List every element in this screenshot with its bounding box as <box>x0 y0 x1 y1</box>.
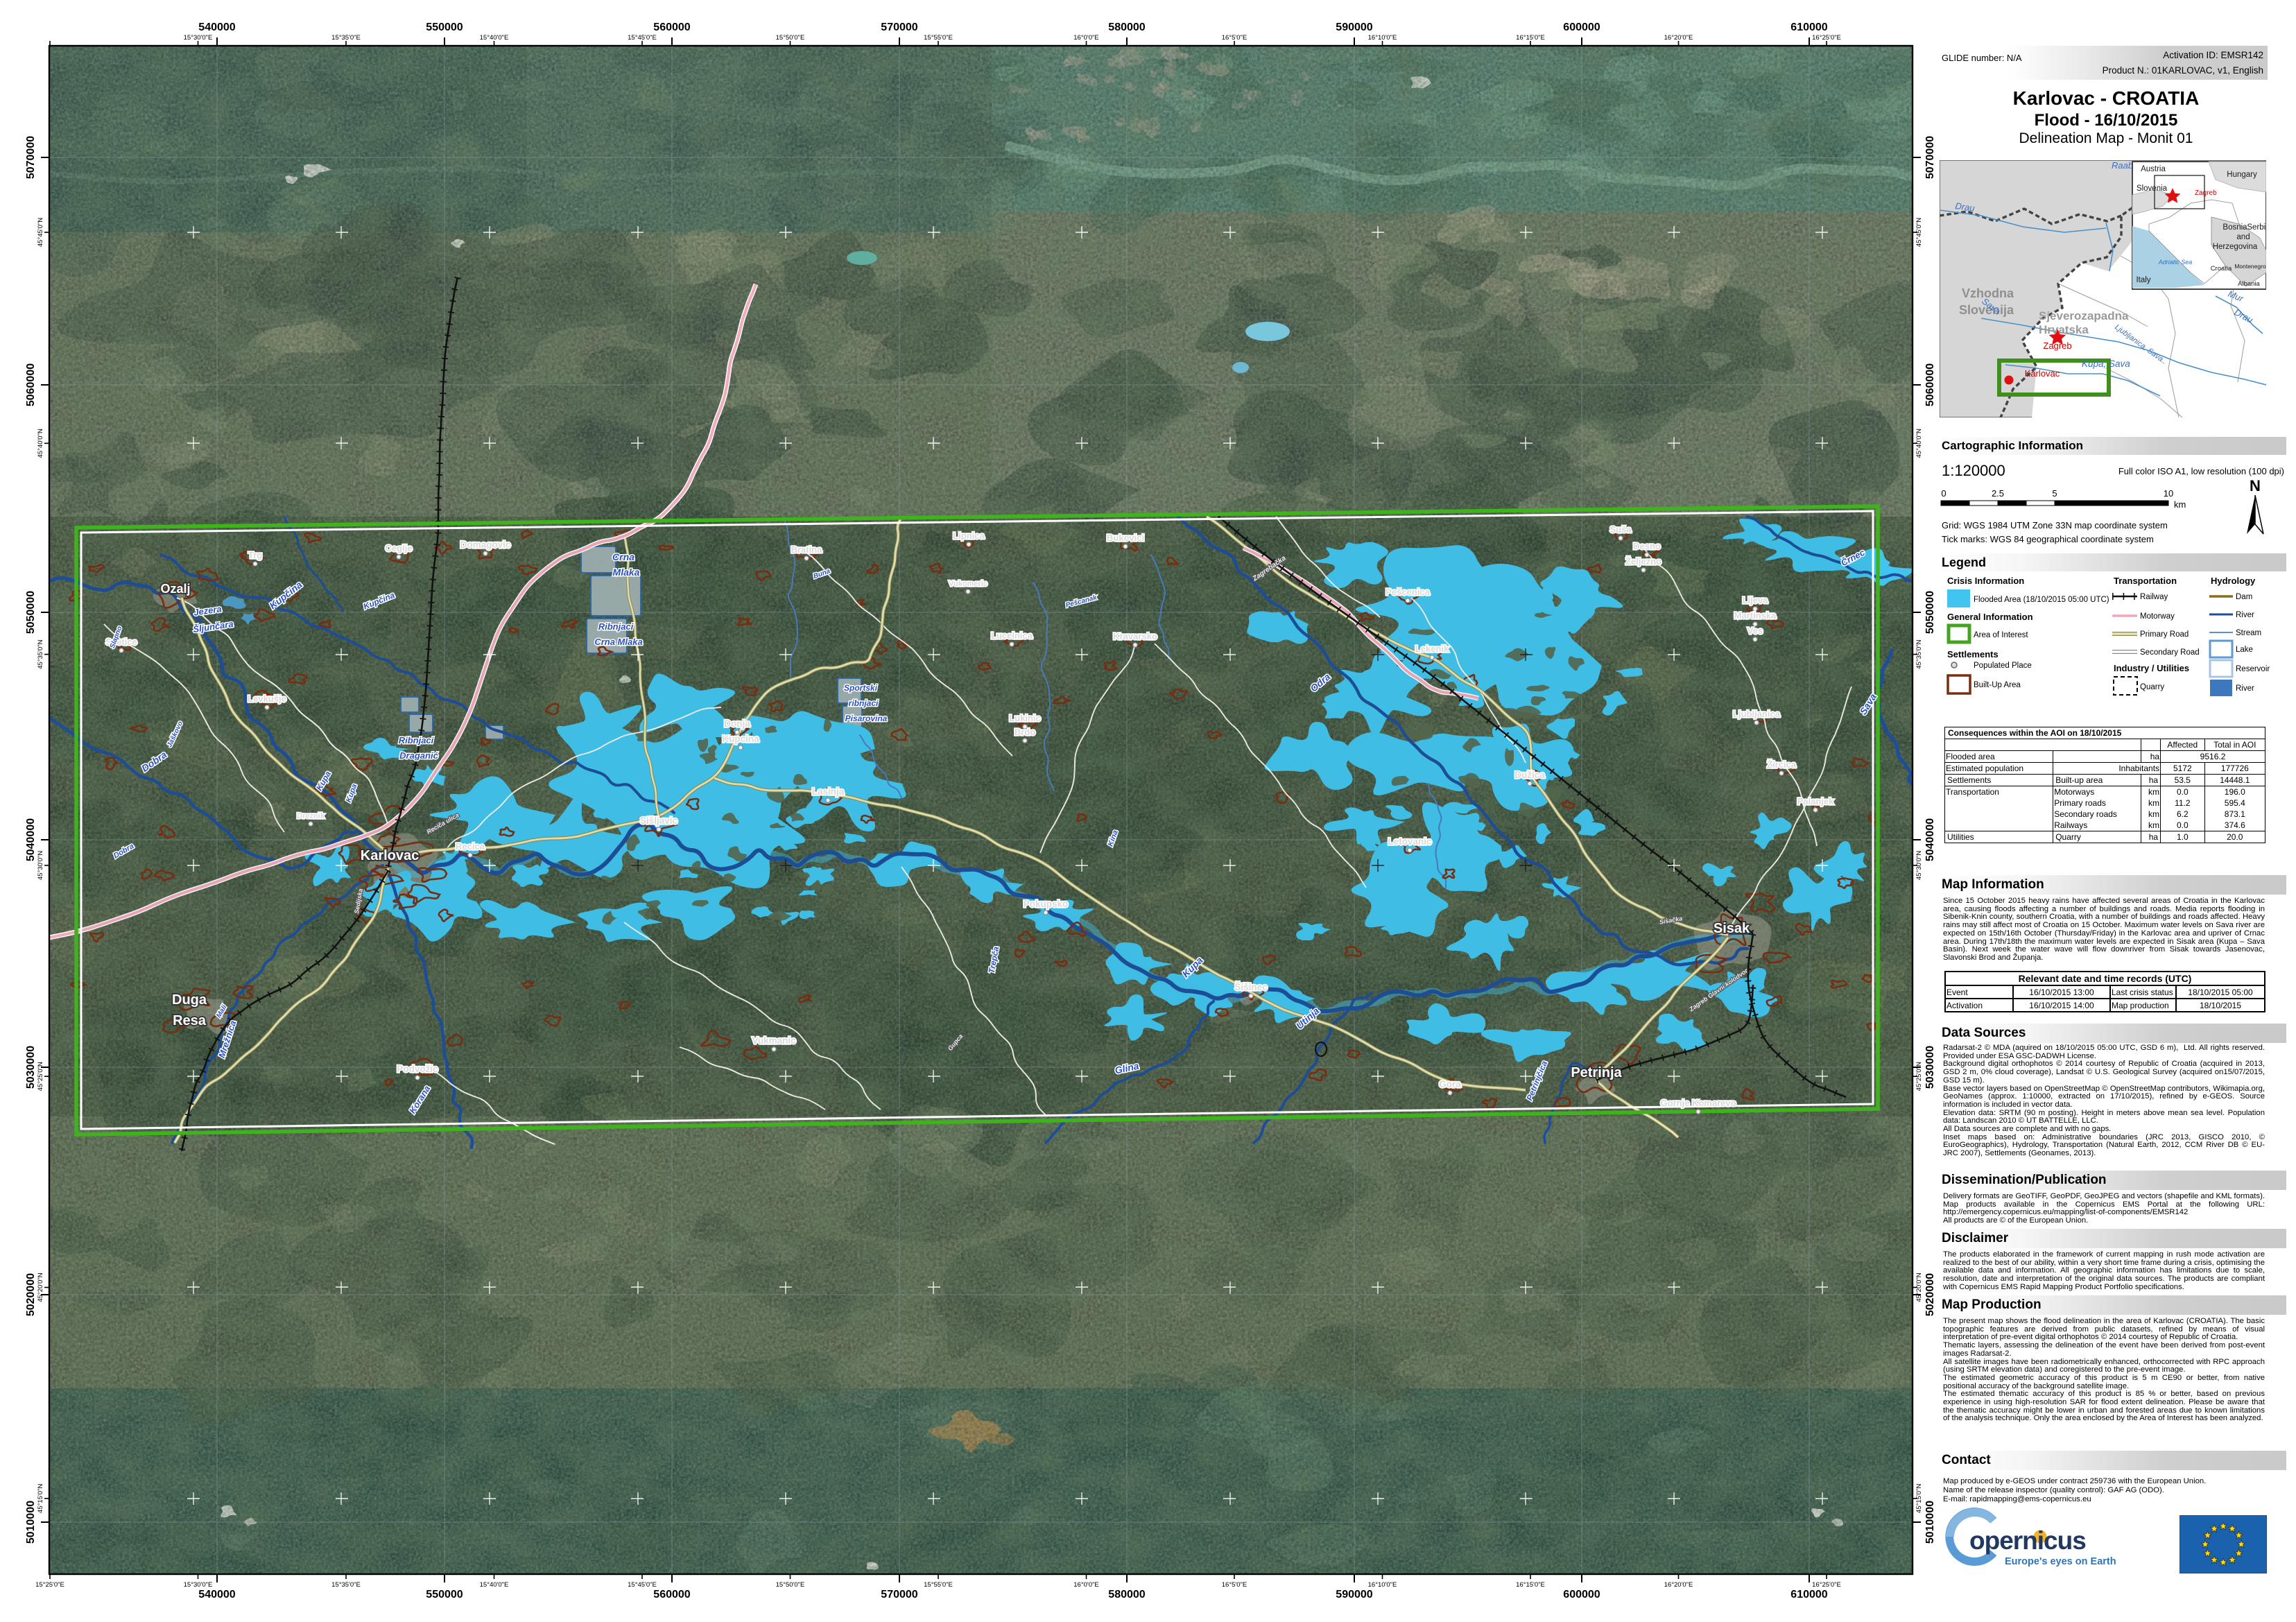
svg-text:15°45'0"E: 15°45'0"E <box>628 34 657 42</box>
svg-text:580000: 580000 <box>1108 1589 1145 1601</box>
svg-text:Petrinja: Petrinja <box>1571 1065 1622 1080</box>
svg-text:Industry / Utilities: Industry / Utilities <box>2114 663 2189 673</box>
svg-text:Lukinic: Lukinic <box>1009 713 1041 723</box>
svg-text:Austria: Austria <box>2141 165 2166 173</box>
svg-text:Sportski: Sportski <box>844 683 878 693</box>
svg-text:5010000: 5010000 <box>25 1501 37 1544</box>
svg-text:Motorway: Motorway <box>2140 612 2175 621</box>
svg-text:Zagreb: Zagreb <box>2043 340 2071 351</box>
svg-text:45°45'0"N: 45°45'0"N <box>37 218 44 247</box>
svg-text:Croatia: Croatia <box>2211 265 2232 273</box>
svg-text:Transportation: Transportation <box>2114 576 2177 586</box>
svg-text:Kupa, Sava: Kupa, Sava <box>2082 359 2130 369</box>
svg-text:45°20'0"N: 45°20'0"N <box>1915 1272 1923 1302</box>
svg-text:45°45'0"N: 45°45'0"N <box>1915 218 1923 247</box>
svg-text:5030000: 5030000 <box>25 1046 37 1089</box>
svg-text:15°55'0"E: 15°55'0"E <box>924 34 953 42</box>
svg-text:5020000: 5020000 <box>25 1273 37 1316</box>
svg-text:5050000: 5050000 <box>25 591 37 634</box>
svg-text:Herzegovina: Herzegovina <box>2213 243 2258 251</box>
svg-text:Ribnjaci: Ribnjaci <box>399 735 434 745</box>
svg-text:45°35'0"N: 45°35'0"N <box>37 639 44 668</box>
svg-text:opernicus: opernicus <box>1969 1526 2086 1555</box>
svg-text:Flooded Area (18/10/2015 05:00: Flooded Area (18/10/2015 05:00 UTC) <box>1974 596 2109 604</box>
svg-text:15°30'0"E: 15°30'0"E <box>184 34 213 42</box>
svg-text:550000: 550000 <box>426 21 463 33</box>
svg-text:16°25'0"E: 16°25'0"E <box>1812 34 1841 42</box>
svg-text:5030000: 5030000 <box>1924 1046 1935 1089</box>
svg-text:Pisarovina: Pisarovina <box>845 714 888 723</box>
svg-text:15°40'0"E: 15°40'0"E <box>480 1581 509 1589</box>
svg-text:Vukmanic: Vukmanic <box>752 1035 796 1046</box>
svg-text:45°30'0"N: 45°30'0"N <box>1915 851 1923 880</box>
svg-text:Desno: Desno <box>1633 541 1661 551</box>
svg-text:16°10'0"E: 16°10'0"E <box>1368 1581 1397 1589</box>
svg-text:Domagovic: Domagovic <box>460 540 511 550</box>
svg-text:Podvožic: Podvožic <box>397 1064 438 1074</box>
svg-text:5010000: 5010000 <box>1924 1501 1935 1544</box>
svg-text:Montenegro: Montenegro <box>2234 263 2266 270</box>
svg-text:Adriatic Sea: Adriatic Sea <box>2158 259 2193 266</box>
svg-text:45°25'0"N: 45°25'0"N <box>37 1062 44 1091</box>
svg-text:610000: 610000 <box>1790 21 1827 33</box>
svg-text:Šišinec: Šišinec <box>1234 982 1268 992</box>
svg-text:16°15'0"E: 16°15'0"E <box>1516 1581 1545 1589</box>
svg-text:Bratina: Bratina <box>791 544 823 555</box>
svg-text:16°20'0"E: 16°20'0"E <box>1664 34 1693 42</box>
svg-text:Hydrology: Hydrology <box>2211 576 2256 586</box>
svg-text:ribnjaci: ribnjaci <box>849 698 879 708</box>
svg-text:Stream: Stream <box>2236 629 2261 637</box>
svg-text:45°40'0"N: 45°40'0"N <box>37 429 44 458</box>
svg-text:Primary Road: Primary Road <box>2140 630 2189 639</box>
svg-text:Zagreb: Zagreb <box>2195 189 2217 197</box>
svg-text:Kupcina: Kupcina <box>722 734 759 744</box>
svg-text:Built-Up Area: Built-Up Area <box>1974 681 2021 689</box>
svg-text:15°50'0"E: 15°50'0"E <box>776 34 805 42</box>
svg-text:Italy: Italy <box>2136 276 2150 284</box>
svg-text:Hrvatska: Hrvatska <box>2039 323 2089 336</box>
svg-text:5040000: 5040000 <box>25 818 37 861</box>
svg-text:16°10'0"E: 16°10'0"E <box>1368 34 1397 42</box>
svg-text:Lucelnica: Lucelnica <box>991 630 1033 641</box>
svg-text:Ribnjaci: Ribnjaci <box>598 621 634 632</box>
svg-text:Crna: Crna <box>612 551 635 562</box>
svg-text:Gora: Gora <box>1439 1079 1461 1089</box>
svg-text:5070000: 5070000 <box>1924 136 1935 179</box>
svg-text:5020000: 5020000 <box>1924 1273 1935 1316</box>
svg-text:570000: 570000 <box>881 1589 917 1601</box>
svg-text:Crna Mlaka: Crna Mlaka <box>594 637 642 647</box>
svg-text:600000: 600000 <box>1563 21 1600 33</box>
svg-text:45°40'0"N: 45°40'0"N <box>1915 429 1923 458</box>
svg-text:General Information: General Information <box>1947 612 2033 622</box>
svg-text:Sjeverozapadna: Sjeverozapadna <box>2039 309 2129 322</box>
svg-text:Resa: Resa <box>173 1013 207 1028</box>
svg-text:Ozalj: Ozalj <box>160 582 190 596</box>
svg-text:16°0'0"E: 16°0'0"E <box>1073 34 1098 42</box>
svg-text:16°5'0"E: 16°5'0"E <box>1222 1581 1247 1589</box>
svg-text:Martinska: Martinska <box>1734 610 1777 621</box>
svg-text:550000: 550000 <box>426 1589 463 1601</box>
svg-text:and: and <box>2236 233 2250 241</box>
svg-text:River: River <box>2236 611 2254 619</box>
svg-text:Lake: Lake <box>2236 646 2253 654</box>
svg-text:5060000: 5060000 <box>25 363 37 406</box>
svg-text:15°25'0"E: 15°25'0"E <box>35 1581 64 1589</box>
svg-text:570000: 570000 <box>881 21 917 33</box>
svg-text:Settlements: Settlements <box>1947 649 1999 659</box>
svg-text:Žircica: Žircica <box>1767 759 1797 770</box>
svg-text:2.5: 2.5 <box>1992 488 2004 499</box>
svg-text:N: N <box>2250 478 2261 494</box>
svg-text:560000: 560000 <box>653 21 690 33</box>
svg-text:Dužica: Dužica <box>1514 770 1545 780</box>
svg-text:Gornje Komarevo: Gornje Komarevo <box>1660 1098 1736 1108</box>
svg-text:Kravarsko: Kravarsko <box>1113 631 1157 641</box>
svg-text:Suša: Suša <box>1609 524 1632 535</box>
svg-text:Lipnica: Lipnica <box>953 530 985 541</box>
svg-text:15°35'0"E: 15°35'0"E <box>331 34 361 42</box>
svg-text:Bosnia: Bosnia <box>2222 223 2247 232</box>
svg-text:15°50'0"E: 15°50'0"E <box>776 1581 805 1589</box>
svg-text:600000: 600000 <box>1563 1589 1600 1601</box>
svg-text:15°45'0"E: 15°45'0"E <box>628 1581 657 1589</box>
svg-text:km: km <box>2174 499 2186 510</box>
svg-text:Duga: Duga <box>172 992 207 1008</box>
svg-text:Mlaka: Mlaka <box>613 567 640 578</box>
svg-text:Lijeva: Lijeva <box>1743 595 1769 605</box>
svg-text:10: 10 <box>2164 488 2173 499</box>
svg-text:16°25'0"E: 16°25'0"E <box>1812 1581 1841 1589</box>
svg-text:15°30'0"E: 15°30'0"E <box>184 1581 213 1589</box>
svg-text:5: 5 <box>2052 488 2057 499</box>
svg-text:Donja: Donja <box>724 718 750 729</box>
svg-text:Reservoir: Reservoir <box>2236 665 2270 673</box>
svg-text:Crisis Information: Crisis Information <box>1947 576 2024 586</box>
svg-text:Željezno: Željezno <box>1625 556 1661 567</box>
svg-text:Vukomeric: Vukomeric <box>949 580 987 588</box>
svg-text:45°15'0"N: 45°15'0"N <box>37 1484 44 1513</box>
svg-text:540000: 540000 <box>198 1589 235 1601</box>
svg-text:Area of Interest: Area of Interest <box>1974 631 2028 639</box>
svg-text:Sisak: Sisak <box>1714 921 1750 936</box>
svg-text:16°5'0"E: 16°5'0"E <box>1222 34 1247 42</box>
svg-text:Karlovac: Karlovac <box>2025 368 2060 379</box>
svg-text:Palanjek: Palanjek <box>1797 796 1835 806</box>
svg-text:15°35'0"E: 15°35'0"E <box>331 1581 361 1589</box>
svg-text:Letovanic: Letovanic <box>1388 836 1432 847</box>
svg-text:Dreznik: Dreznik <box>297 812 325 820</box>
svg-text:Secondary Road: Secondary Road <box>2140 648 2200 657</box>
svg-text:Recica: Recica <box>456 841 485 852</box>
svg-text:610000: 610000 <box>1790 1589 1827 1601</box>
svg-text:Ves: Ves <box>1747 625 1763 636</box>
svg-text:5070000: 5070000 <box>25 136 37 179</box>
svg-text:Levkušje: Levkušje <box>248 693 286 704</box>
svg-text:Hungary: Hungary <box>2227 171 2257 179</box>
svg-text:5040000: 5040000 <box>1924 818 1935 861</box>
svg-text:Populated Place: Populated Place <box>1974 662 2032 670</box>
svg-text:Slovenia: Slovenia <box>2137 184 2168 193</box>
svg-text:Bukovici: Bukovici <box>1107 533 1144 543</box>
svg-text:Quarry: Quarry <box>2140 683 2164 691</box>
svg-text:Draganić: Draganić <box>399 750 438 761</box>
svg-text:15°40'0"E: 15°40'0"E <box>480 34 509 42</box>
svg-text:16°15'0"E: 16°15'0"E <box>1516 34 1545 42</box>
svg-text:Ceglje: Ceglje <box>385 543 412 553</box>
svg-text:Brdo: Brdo <box>1015 727 1035 737</box>
svg-text:16°20'0"E: 16°20'0"E <box>1664 1581 1693 1589</box>
svg-text:15°55'0"E: 15°55'0"E <box>924 1581 953 1589</box>
svg-text:45°25'0"N: 45°25'0"N <box>1915 1062 1923 1091</box>
svg-text:5050000: 5050000 <box>1924 591 1935 634</box>
svg-text:Sišljavic: Sišljavic <box>640 816 678 826</box>
svg-text:Lasinja: Lasinja <box>812 786 845 797</box>
svg-text:45°20'0"N: 45°20'0"N <box>37 1272 44 1302</box>
svg-text:Lekenik: Lekenik <box>1415 644 1449 654</box>
svg-text:Europe's eyes on Earth: Europe's eyes on Earth <box>2005 1556 2116 1567</box>
svg-text:Ljubljanica: Ljubljanica <box>1733 709 1781 719</box>
svg-text:Pokupsko: Pokupsko <box>1024 899 1069 909</box>
svg-text:Karlovac: Karlovac <box>361 848 420 863</box>
svg-text:Trg: Trg <box>248 550 262 560</box>
svg-text:45°15'0"N: 45°15'0"N <box>1915 1484 1923 1513</box>
svg-text:590000: 590000 <box>1336 21 1372 33</box>
svg-text:560000: 560000 <box>653 1589 690 1601</box>
svg-text:River: River <box>2236 684 2254 693</box>
svg-text:Albania: Albania <box>2238 280 2260 288</box>
svg-text:Serbia: Serbia <box>2247 223 2266 232</box>
svg-text:Pešcenica: Pešcenica <box>1386 587 1430 597</box>
svg-text:0: 0 <box>1941 488 1946 499</box>
svg-text:16°0'0"E: 16°0'0"E <box>1073 1581 1098 1589</box>
svg-text:580000: 580000 <box>1108 21 1145 33</box>
svg-text:Dam: Dam <box>2236 593 2252 601</box>
svg-text:45°35'0"N: 45°35'0"N <box>1915 639 1923 668</box>
svg-text:5060000: 5060000 <box>1924 363 1935 406</box>
svg-text:Raab: Raab <box>2112 160 2133 171</box>
svg-text:590000: 590000 <box>1336 1589 1372 1601</box>
svg-text:45°30'0"N: 45°30'0"N <box>37 851 44 880</box>
svg-text:Railway: Railway <box>2140 593 2168 601</box>
svg-text:540000: 540000 <box>198 21 235 33</box>
